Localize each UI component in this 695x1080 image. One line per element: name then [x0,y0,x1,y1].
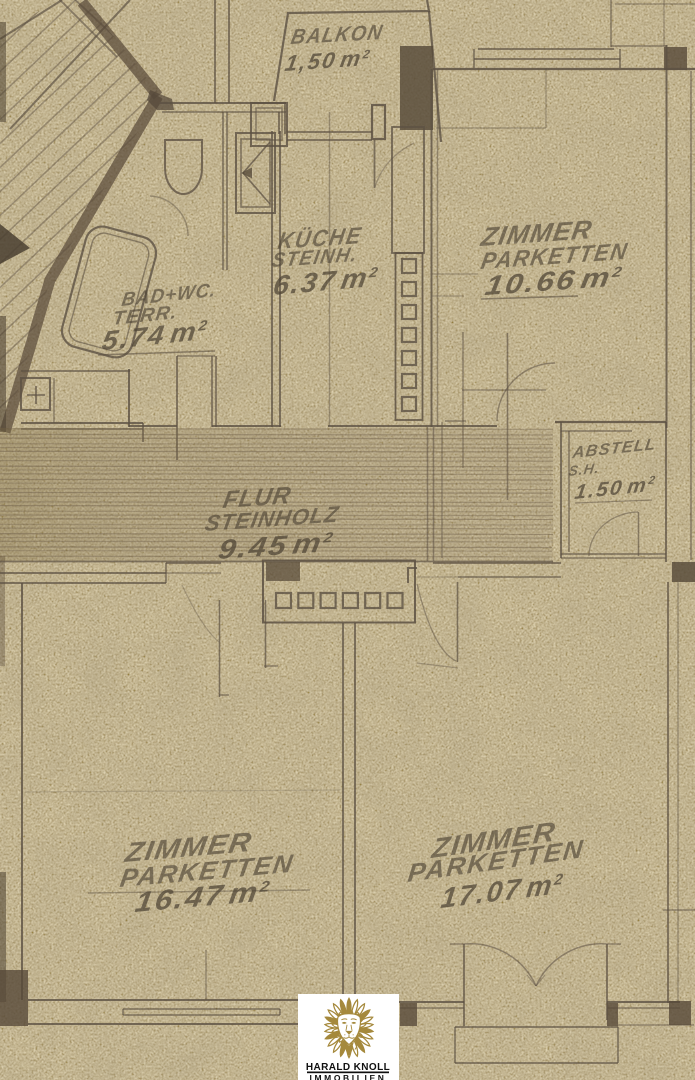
svg-text:BALKON: BALKON [289,20,386,49]
svg-text:HARALD KNOLL: HARALD KNOLL [306,1062,390,1073]
svg-text:IMMOBILIEN: IMMOBILIEN [310,1073,387,1080]
